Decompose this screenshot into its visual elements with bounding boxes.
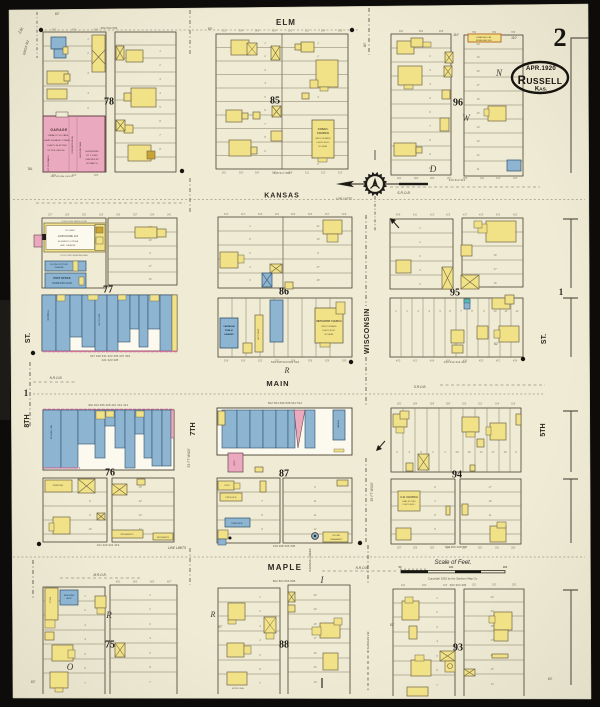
svg-text:PRINTING: PRINTING bbox=[53, 485, 64, 487]
svg-text:O: O bbox=[67, 662, 74, 672]
svg-text:85: 85 bbox=[270, 96, 280, 107]
svg-text:18: 18 bbox=[488, 499, 492, 503]
svg-text:2: 2 bbox=[316, 54, 319, 58]
svg-text:82': 82' bbox=[494, 342, 499, 346]
svg-text:LIGHTS ELEC.: LIGHTS ELEC. bbox=[403, 504, 416, 506]
svg-text:ELEMENTS OPERA: ELEMENTS OPERA bbox=[58, 240, 79, 243]
svg-text:13: 13 bbox=[138, 513, 142, 517]
svg-text:ST.: ST. bbox=[541, 334, 548, 344]
svg-text:U.B. CHURCH: U.B. CHURCH bbox=[400, 495, 417, 499]
svg-text:18: 18 bbox=[493, 253, 497, 257]
svg-text:83': 83' bbox=[548, 677, 553, 681]
svg-text:ELM: ELM bbox=[276, 18, 296, 27]
svg-text:ERMA LANE M.B.: ERMA LANE M.B. bbox=[476, 39, 493, 42]
svg-text:BRICK VENEER: BRICK VENEER bbox=[316, 138, 331, 140]
svg-text:13: 13 bbox=[476, 139, 480, 143]
svg-text:W'KS: W'KS bbox=[225, 485, 231, 487]
svg-text:17: 17 bbox=[476, 83, 480, 87]
svg-text:COOK TRIO FEEDING BHD: COOK TRIO FEEDING BHD bbox=[60, 255, 88, 257]
svg-text:310 308 306 305: 310 308 306 305 bbox=[273, 544, 296, 548]
svg-text:STORE: STORE bbox=[50, 596, 52, 603]
svg-text:BRICK VENEER: BRICK VENEER bbox=[322, 326, 337, 328]
svg-text:ST. FLR. WHOLE: ST. FLR. WHOLE bbox=[47, 150, 65, 152]
svg-text:53 FT WIDE: 53 FT WIDE bbox=[187, 448, 191, 468]
svg-text:80': 80' bbox=[55, 12, 60, 16]
svg-text:KAS.: KAS. bbox=[535, 87, 547, 93]
svg-text:14: 14 bbox=[313, 680, 317, 684]
svg-text:N.R.O.B.: N.R.O.B. bbox=[50, 376, 63, 380]
svg-text:GARAGE: GARAGE bbox=[337, 419, 340, 428]
svg-text:HUB DOME 121: HUB DOME 121 bbox=[58, 234, 79, 238]
svg-text:CARNEGIE: CARNEGIE bbox=[223, 325, 235, 328]
svg-text:2: 2 bbox=[431, 450, 434, 454]
svg-text:402 404 406 408 410 412: 402 404 406 408 410 412 414 bbox=[88, 403, 128, 407]
svg-text:802 804 806 808: 802 804 806 808 bbox=[273, 579, 296, 583]
svg-text:KANSAS CREEK: KANSAS CREEK bbox=[308, 547, 312, 571]
svg-text:17: 17 bbox=[316, 265, 320, 269]
svg-text:20: 20 bbox=[489, 595, 494, 599]
svg-text:APR.1920: APR.1920 bbox=[526, 66, 556, 72]
svg-text:7TH: 7TH bbox=[190, 422, 197, 435]
svg-text:100 FT HOSE: 100 FT HOSE bbox=[99, 313, 101, 326]
svg-text:CAPACITY 40 CARS: CAPACITY 40 CARS bbox=[48, 134, 69, 137]
svg-text:LIGHTS: ELECTRIC: LIGHTS: ELECTRIC bbox=[47, 145, 67, 147]
svg-text:20: 20 bbox=[312, 593, 317, 597]
svg-text:NO HEAT: NO HEAT bbox=[325, 333, 335, 336]
svg-text:19: 19 bbox=[476, 55, 480, 59]
svg-text:WRECKING: WRECKING bbox=[64, 595, 75, 597]
svg-text:COOK 100K FEHR & FHK: COOK 100K FEHR & FHK bbox=[61, 221, 87, 223]
svg-text:20: 20 bbox=[454, 450, 459, 454]
svg-text:17: 17 bbox=[490, 638, 494, 642]
svg-text:NO HEAT: NO HEAT bbox=[65, 229, 75, 232]
svg-text:IMPLEMENTS: IMPLEMENTS bbox=[157, 537, 169, 539]
svg-text:PRODUCE: PRODUCE bbox=[226, 497, 237, 499]
svg-text:83': 83' bbox=[31, 680, 36, 684]
svg-text:2: 2 bbox=[435, 610, 438, 614]
svg-text:HEAT STOVES: HEAT STOVES bbox=[402, 500, 416, 503]
svg-text:11: 11 bbox=[477, 167, 480, 171]
svg-text:421 420 421 419: 421 420 421 419 bbox=[97, 543, 120, 547]
svg-text:82': 82' bbox=[390, 623, 395, 627]
svg-text:19: 19 bbox=[467, 450, 471, 454]
svg-text:100: 100 bbox=[449, 565, 454, 569]
svg-text:19: 19 bbox=[313, 607, 317, 611]
svg-text:96: 96 bbox=[453, 98, 463, 109]
svg-text:17: 17 bbox=[493, 267, 497, 271]
svg-text:ARTISTS BAG: ARTISTS BAG bbox=[232, 687, 244, 690]
svg-text:80': 80' bbox=[208, 27, 213, 31]
svg-text:CONCRETE BLDG: CONCRETE BLDG bbox=[72, 136, 74, 154]
svg-text:2: 2 bbox=[258, 609, 261, 613]
svg-text:NO HEAT: NO HEAT bbox=[319, 145, 329, 148]
svg-text:BY T. FOND: BY T. FOND bbox=[86, 155, 98, 157]
svg-text:2: 2 bbox=[148, 607, 151, 611]
svg-text:LIGHTS ELEC.: LIGHTS ELEC. bbox=[316, 142, 330, 144]
svg-text:2: 2 bbox=[428, 54, 431, 58]
svg-text:Copyright 1920 by the Sanborn: Copyright 1920 by the Sanborn Map Co. bbox=[428, 577, 478, 581]
svg-text:15: 15 bbox=[138, 485, 142, 489]
svg-text:2: 2 bbox=[83, 608, 86, 612]
svg-text:POST OFFICE: POST OFFICE bbox=[53, 276, 71, 280]
svg-text:16: 16 bbox=[148, 277, 152, 281]
svg-text:CREAMERY: CREAMERY bbox=[330, 538, 343, 541]
svg-text:RUSSELL INN: RUSSELL INN bbox=[51, 424, 53, 439]
svg-text:1: 1 bbox=[559, 287, 564, 297]
svg-text:18: 18 bbox=[316, 278, 320, 282]
svg-text:11: 11 bbox=[314, 513, 317, 517]
svg-text:KANSAS CR.: KANSAS CR. bbox=[366, 631, 370, 649]
svg-text:76: 76 bbox=[105, 468, 115, 479]
svg-text:12: 12 bbox=[515, 309, 519, 313]
svg-text:THEATRE: THEATRE bbox=[54, 266, 64, 269]
svg-text:17: 17 bbox=[148, 264, 152, 268]
svg-text:16: 16 bbox=[503, 450, 507, 454]
svg-text:19: 19 bbox=[316, 237, 320, 241]
svg-text:15: 15 bbox=[476, 111, 480, 115]
svg-text:GARAGE: GARAGE bbox=[50, 128, 68, 132]
svg-text:19: 19 bbox=[490, 609, 494, 613]
svg-text:CHECKED BY: CHECKED BY bbox=[85, 159, 99, 161]
svg-text:15: 15 bbox=[490, 667, 494, 671]
svg-text:N: N bbox=[495, 68, 503, 78]
svg-text:110': 110' bbox=[453, 33, 459, 37]
svg-text:R: R bbox=[105, 610, 112, 620]
svg-text:OZONE: OZONE bbox=[332, 535, 340, 537]
svg-text:14: 14 bbox=[479, 450, 483, 454]
svg-text:RUSSELL: RUSSELL bbox=[518, 75, 563, 87]
svg-text:87': 87' bbox=[218, 625, 223, 629]
svg-text:M.R.O.B.: M.R.O.B. bbox=[93, 573, 106, 577]
svg-text:15: 15 bbox=[313, 665, 317, 669]
svg-text:5TH: 5TH bbox=[540, 423, 547, 436]
svg-text:17: 17 bbox=[313, 636, 317, 640]
svg-text:14: 14 bbox=[476, 125, 480, 129]
svg-text:16: 16 bbox=[313, 651, 317, 655]
svg-text:MOVING PICTURE: MOVING PICTURE bbox=[50, 264, 68, 266]
svg-text:BRICK: BRICK bbox=[234, 459, 236, 465]
svg-text:80': 80' bbox=[363, 42, 367, 47]
svg-text:LIBRARY: LIBRARY bbox=[224, 333, 234, 336]
svg-text:ST.: ST. bbox=[25, 333, 32, 343]
svg-text:1: 1 bbox=[24, 388, 29, 398]
svg-text:N.R.O.B.: N.R.O.B. bbox=[356, 566, 369, 570]
svg-text:METHODIST CHURCH: METHODIST CHURCH bbox=[316, 320, 341, 323]
svg-text:2: 2 bbox=[86, 51, 89, 55]
svg-text:2: 2 bbox=[553, 22, 566, 52]
svg-text:18: 18 bbox=[490, 624, 494, 628]
svg-text:10: 10 bbox=[493, 309, 497, 313]
svg-text:IMPLEMENTS: IMPLEMENTS bbox=[120, 534, 134, 536]
svg-text:2: 2 bbox=[418, 240, 421, 244]
svg-text:77: 77 bbox=[103, 285, 113, 296]
svg-text:2: 2 bbox=[405, 309, 408, 313]
svg-text:LINE LIMITS: LINE LIMITS bbox=[168, 546, 187, 550]
svg-text:HAMILTON CLUB: HAMILTON CLUB bbox=[52, 282, 72, 285]
svg-text:12: 12 bbox=[313, 527, 317, 531]
svg-text:MAPLE: MAPLE bbox=[268, 563, 303, 572]
svg-text:KANSAS: KANSAS bbox=[264, 192, 300, 199]
svg-text:78: 78 bbox=[104, 97, 114, 108]
svg-text:CHURCH: CHURCH bbox=[317, 131, 329, 135]
svg-text:8 T. TILE WALLS: 8 T. TILE WALLS bbox=[47, 155, 50, 171]
svg-text:S.R.O.B.: S.R.O.B. bbox=[414, 385, 427, 389]
svg-text:MAIN: MAIN bbox=[266, 379, 289, 388]
svg-text:17: 17 bbox=[488, 485, 492, 489]
svg-text:300: 300 bbox=[503, 565, 508, 569]
svg-text:GASOLINE TANK: GASOLINE TANK bbox=[79, 141, 82, 158]
svg-text:321 323 325: 321 323 325 bbox=[102, 358, 119, 362]
svg-text:2: 2 bbox=[263, 54, 266, 58]
svg-text:WISCONSIN: WISCONSIN bbox=[364, 308, 371, 354]
svg-text:NO WATCH: NO WATCH bbox=[86, 162, 98, 165]
svg-text:502 504 506 508 510 512: 502 504 506 508 510 512 bbox=[268, 401, 303, 405]
svg-text:PRODUCE: PRODUCE bbox=[232, 523, 243, 525]
svg-text:RUSSELL: RUSSELL bbox=[47, 309, 50, 321]
svg-text:11: 11 bbox=[314, 499, 317, 503]
svg-text:LINE LIMITS: LINE LIMITS bbox=[336, 197, 352, 201]
svg-text:11: 11 bbox=[489, 513, 492, 517]
svg-text:R: R bbox=[210, 610, 216, 619]
svg-text:21: 21 bbox=[315, 224, 320, 228]
svg-text:R: R bbox=[284, 366, 290, 375]
svg-text:PUBLIC: PUBLIC bbox=[225, 330, 234, 332]
svg-text:110': 110' bbox=[511, 36, 517, 40]
svg-text:TAL: TAL bbox=[27, 167, 33, 171]
svg-text:14: 14 bbox=[490, 682, 494, 686]
svg-text:10: 10 bbox=[88, 527, 92, 531]
svg-text:19: 19 bbox=[148, 238, 152, 242]
svg-text:75: 75 bbox=[105, 640, 115, 651]
svg-text:88: 88 bbox=[279, 640, 289, 651]
svg-text:EVANGELICAL: EVANGELICAL bbox=[476, 36, 492, 39]
svg-text:18: 18 bbox=[476, 69, 480, 73]
svg-text:2: 2 bbox=[158, 63, 161, 67]
svg-text:602 604 606: 602 604 606 bbox=[101, 26, 118, 30]
svg-text:S.R.O.B.: S.R.O.B. bbox=[397, 191, 410, 195]
svg-text:39 FT WIDE: 39 FT WIDE bbox=[370, 482, 374, 502]
svg-text:AUTO PAINT: AUTO PAINT bbox=[257, 328, 260, 340]
svg-text:D: D bbox=[429, 164, 437, 174]
svg-text:HEAT: EXHAUST STEAM: HEAT: EXHAUST STEAM bbox=[44, 139, 69, 142]
svg-text:18: 18 bbox=[313, 622, 317, 626]
svg-text:SUPERVISED: SUPERVISED bbox=[85, 151, 99, 153]
svg-text:11: 11 bbox=[505, 309, 508, 313]
svg-text:SHOP: SHOP bbox=[66, 598, 72, 600]
svg-text:LIGHTS ELEC.: LIGHTS ELEC. bbox=[322, 330, 336, 332]
svg-text:16: 16 bbox=[476, 97, 480, 101]
svg-text:16: 16 bbox=[493, 281, 497, 285]
svg-text:17: 17 bbox=[491, 450, 495, 454]
svg-text:20: 20 bbox=[475, 42, 480, 46]
svg-text:302 304 306: 302 304 306 bbox=[450, 583, 467, 587]
svg-text:14: 14 bbox=[138, 499, 142, 503]
svg-text:AND THEATRE: AND THEATRE bbox=[60, 244, 76, 247]
svg-text:12: 12 bbox=[476, 153, 480, 157]
